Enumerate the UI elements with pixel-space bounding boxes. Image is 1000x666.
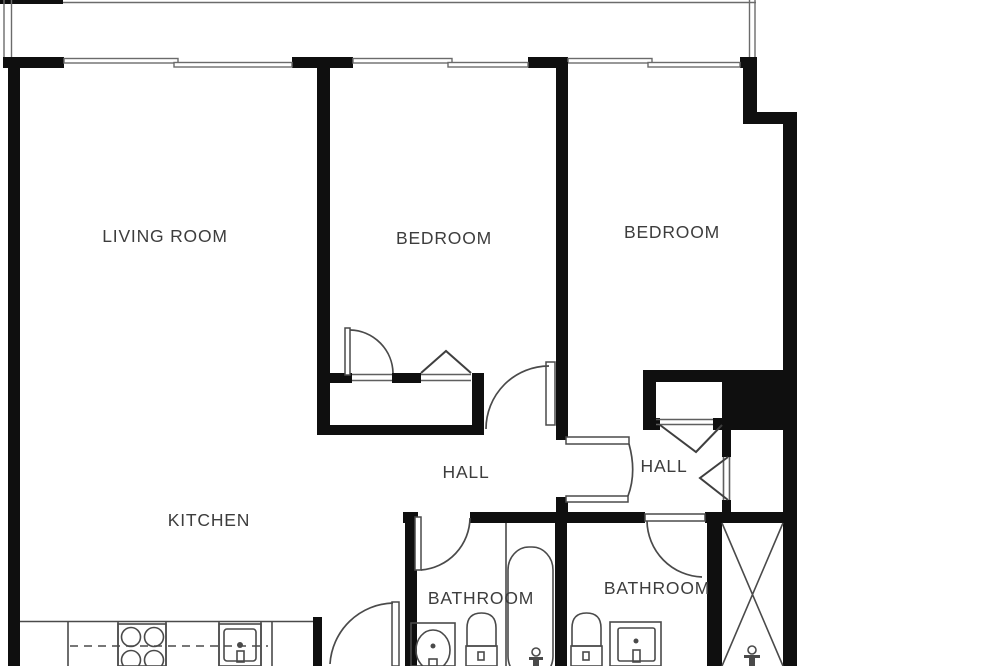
bathroom2-door	[645, 514, 705, 577]
hall2-label: HALL	[641, 456, 688, 476]
bathroom1-bathroom2-wall	[555, 512, 567, 666]
bedroom1-closet-wall-b	[392, 373, 421, 383]
hall2-closet-opening	[724, 457, 730, 500]
entry-door	[330, 602, 399, 666]
kitchen-sink	[219, 624, 261, 666]
bedroom2-window-a	[568, 59, 652, 64]
entry-wall-stub	[313, 617, 322, 666]
balcony-top-wall	[0, 0, 63, 4]
hall1-north-wall	[317, 425, 484, 435]
bedroom2-closet-opening	[656, 420, 713, 425]
floor-plan-page: LIVING ROOM BEDROOM BEDROOM KITCHEN HALL…	[0, 0, 1000, 666]
service-shaft	[722, 382, 797, 430]
bathroom1-door	[415, 517, 470, 570]
hall-connecting-door	[566, 437, 633, 502]
bathtub-faucet	[529, 648, 543, 666]
bedroom1-closet-opening-b	[421, 375, 471, 381]
living-room-label: LIVING ROOM	[102, 226, 227, 246]
bedroom2-closet-top-wall	[643, 370, 797, 382]
exterior-walls	[3, 57, 797, 666]
pedestal-sink	[411, 623, 455, 666]
opening-sills	[352, 375, 730, 501]
bedroom2-window-b	[648, 63, 740, 68]
windows	[64, 59, 740, 68]
balcony	[0, 0, 756, 57]
north-wall-pier-1	[3, 57, 64, 68]
living-room-window-b	[174, 63, 292, 68]
stove	[118, 624, 166, 666]
toilet-2	[571, 613, 602, 666]
hall1-label: HALL	[443, 462, 490, 482]
partition-bedroom1-bedroom2	[556, 62, 568, 440]
bathroom1-label: BATHROOM	[428, 588, 534, 608]
bedroom1-closet-bifold-door	[421, 351, 471, 373]
shower	[722, 523, 783, 666]
toilet-1	[466, 613, 497, 666]
vanity-sink	[610, 622, 661, 666]
west-wall	[8, 57, 20, 666]
living-room-window-a	[64, 59, 178, 64]
bedroom2-closet-bifold-door	[660, 425, 722, 452]
bedroom1-window-b	[448, 63, 528, 68]
floor-plan-drawing: LIVING ROOM BEDROOM BEDROOM KITCHEN HALL…	[0, 0, 1000, 666]
bedroom1-window-a	[353, 59, 452, 64]
bedroom1-closet-door	[345, 328, 393, 375]
hall2-closet-stub-top	[722, 430, 731, 457]
bedroom1-label: BEDROOM	[396, 228, 492, 248]
kitchen-fixtures	[20, 622, 313, 666]
bathroom2-label: BATHROOM	[604, 578, 710, 598]
bedroom1-closet-opening-a	[352, 375, 392, 381]
bedroom1-door	[486, 362, 555, 429]
bedroom2-label: BEDROOM	[624, 222, 720, 242]
kitchen-label: KITCHEN	[168, 510, 250, 530]
